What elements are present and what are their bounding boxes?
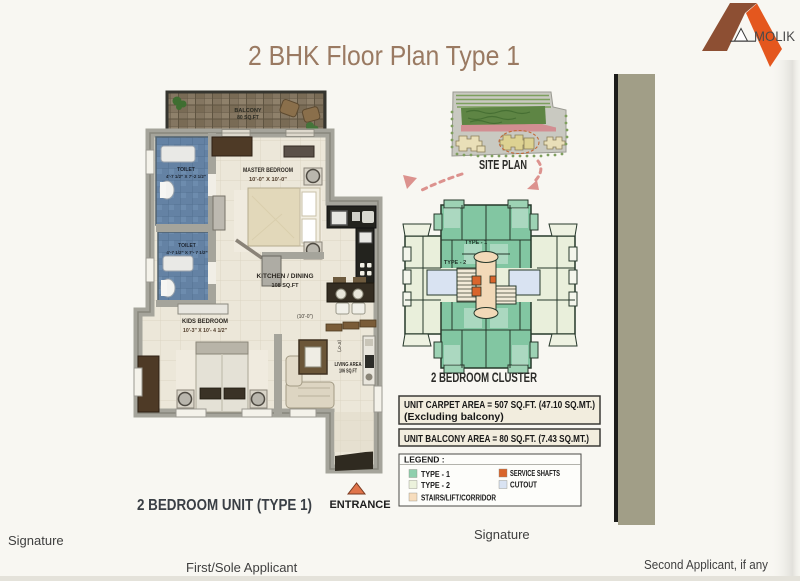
svg-text:First/Sole Applicant: First/Sole Applicant <box>186 560 298 575</box>
svg-text:TYPE - 1: TYPE - 1 <box>421 470 450 479</box>
svg-text:(10'-0"): (10'-0") <box>297 314 313 320</box>
svg-text:TOILET: TOILET <box>177 167 195 173</box>
svg-text:106 SQ.FT: 106 SQ.FT <box>339 369 357 375</box>
svg-text:LIVING AREA: LIVING AREA <box>335 362 362 368</box>
svg-text:UNIT BALCONY AREA = 80 SQ.FT.: UNIT BALCONY AREA = 80 SQ.FT. (7.43 SQ.M… <box>404 433 589 445</box>
svg-text:TYPE - 1: TYPE - 1 <box>465 240 487 246</box>
svg-text:2 BEDROOM CLUSTER: 2 BEDROOM CLUSTER <box>431 370 537 385</box>
svg-text:BALCONY: BALCONY <box>234 108 262 114</box>
svg-text:108 SQ.FT: 108 SQ.FT <box>272 283 300 289</box>
svg-text:Signature: Signature <box>474 527 530 542</box>
svg-text:TOILET: TOILET <box>178 243 196 249</box>
svg-text:MOLIK: MOLIK <box>754 29 795 44</box>
svg-text:4'-7 1/2" X 7'-2 1/2": 4'-7 1/2" X 7'-2 1/2" <box>166 174 206 179</box>
svg-text:LEGEND :: LEGEND : <box>404 455 445 465</box>
svg-text:SERVICE SHAFTS: SERVICE SHAFTS <box>510 469 560 478</box>
svg-text:TYPE - 2: TYPE - 2 <box>421 481 450 490</box>
svg-text:2 BHK Floor Plan Type 1: 2 BHK Floor Plan Type 1 <box>248 40 520 71</box>
svg-text:Second Applicant, if any: Second Applicant, if any <box>644 557 768 572</box>
svg-text:TYPE - 2: TYPE - 2 <box>444 260 466 266</box>
svg-text:MASTER BEDROOM: MASTER BEDROOM <box>243 168 293 174</box>
svg-text:KIDS BEDROOM: KIDS BEDROOM <box>182 319 228 325</box>
svg-text:STAIRS/LIFT/CORRIDOR: STAIRS/LIFT/CORRIDOR <box>421 494 496 503</box>
svg-text:4'-7 1/2" X 7'- 7 1/2": 4'-7 1/2" X 7'- 7 1/2" <box>166 250 207 255</box>
svg-text:Signature: Signature <box>8 533 64 548</box>
svg-text:80 SQ.FT: 80 SQ.FT <box>237 115 259 121</box>
svg-text:KITCHEN / DINING: KITCHEN / DINING <box>256 273 313 280</box>
svg-text:CUTOUT: CUTOUT <box>510 481 537 490</box>
svg-text:ENTRANCE: ENTRANCE <box>329 499 390 511</box>
svg-text:10'-3" X 10'- 4 1/2": 10'-3" X 10'- 4 1/2" <box>183 328 227 334</box>
svg-text:2 BEDROOM UNIT (TYPE 1): 2 BEDROOM UNIT (TYPE 1) <box>137 497 312 514</box>
svg-text:SITE PLAN: SITE PLAN <box>479 157 527 172</box>
svg-text:(Excluding balcony): (Excluding balcony) <box>404 411 504 423</box>
svg-text:10'-0" X 10'-0": 10'-0" X 10'-0" <box>249 177 287 183</box>
svg-text:UNIT CARPET AREA = 507 SQ.FT: UNIT CARPET AREA = 507 SQ.FT. (47.10 SQ.… <box>404 399 595 411</box>
svg-text:(8'-0"): (8'-0") <box>337 340 342 352</box>
